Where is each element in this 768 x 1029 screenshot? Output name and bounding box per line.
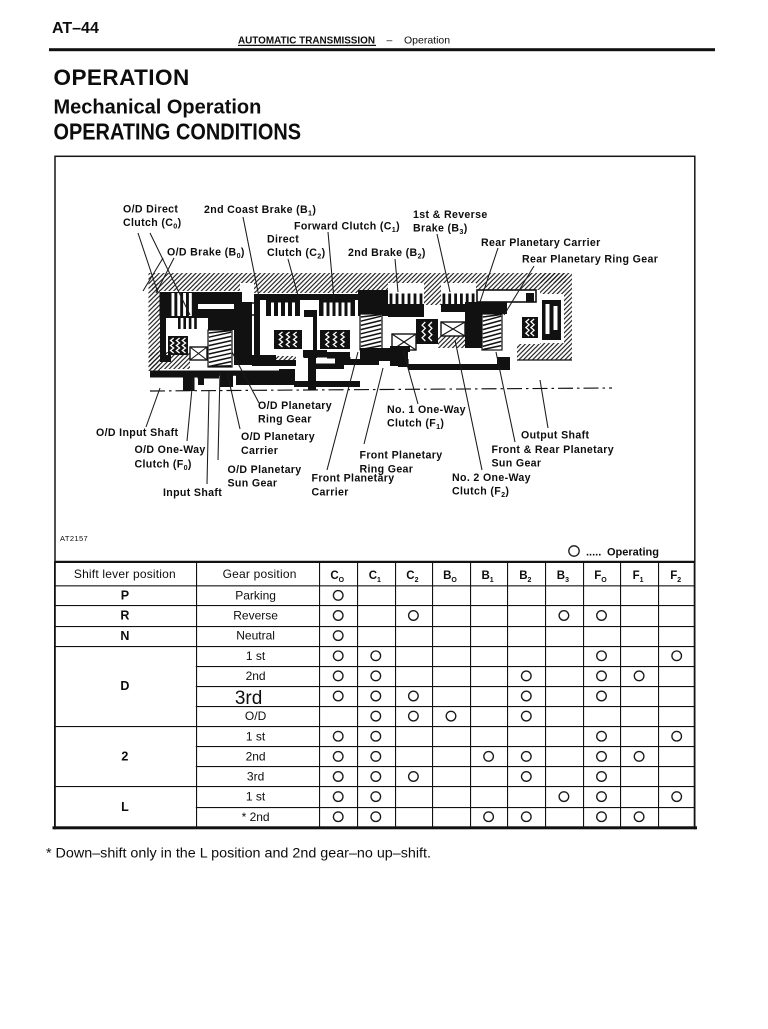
- svg-text:Carrier: Carrier: [312, 487, 349, 499]
- svg-text:R: R: [120, 609, 129, 623]
- svg-text:2nd Coast Brake (B1): 2nd Coast Brake (B1): [204, 204, 316, 218]
- svg-text:N: N: [120, 629, 129, 643]
- svg-text:Mechanical Operation: Mechanical Operation: [54, 96, 262, 118]
- svg-text:1 st: 1 st: [246, 790, 266, 804]
- svg-text:Operating: Operating: [607, 547, 659, 559]
- svg-text:Reverse: Reverse: [233, 609, 278, 623]
- svg-text:Neutral: Neutral: [236, 629, 275, 643]
- svg-text:Carrier: Carrier: [241, 445, 278, 457]
- svg-text:O/D: O/D: [245, 709, 267, 723]
- svg-text:2nd Brake (B2): 2nd Brake (B2): [348, 247, 426, 261]
- svg-text:Ring Gear: Ring Gear: [360, 464, 414, 476]
- svg-text:O/D Direct: O/D Direct: [123, 204, 178, 216]
- svg-text:2nd: 2nd: [246, 750, 266, 764]
- svg-text:OPERATING CONDITIONS: OPERATING CONDITIONS: [54, 119, 302, 145]
- svg-text:AT2157: AT2157: [60, 534, 88, 543]
- svg-text:O/D Planetary: O/D Planetary: [241, 431, 315, 443]
- svg-text:2: 2: [121, 750, 128, 764]
- svg-text:O/D Input Shaft: O/D Input Shaft: [96, 427, 178, 439]
- svg-text:Clutch (F0): Clutch (F0): [135, 459, 192, 473]
- svg-text:OPERATION: OPERATION: [54, 65, 190, 90]
- svg-text:Front Planetary: Front Planetary: [360, 450, 443, 462]
- svg-text:1st & Reverse: 1st & Reverse: [413, 209, 488, 221]
- svg-text:AUTOMATIC TRANSMISSION: AUTOMATIC TRANSMISSION: [238, 35, 375, 47]
- svg-text:Sun Gear: Sun Gear: [228, 478, 278, 490]
- svg-text:* Down–shift only in the L pos: * Down–shift only in the L position and …: [46, 846, 431, 861]
- svg-text:Clutch (C0): Clutch (C0): [123, 217, 181, 231]
- svg-text:P: P: [121, 589, 129, 603]
- svg-text:Rear Planetary Ring Gear: Rear Planetary Ring Gear: [522, 254, 658, 266]
- svg-text:O/D Planetary: O/D Planetary: [228, 464, 302, 476]
- svg-text:No. 1 One-Way: No. 1 One-Way: [387, 404, 466, 416]
- svg-text:Forward Clutch (C1): Forward Clutch (C1): [294, 221, 400, 235]
- svg-text:.....: .....: [586, 547, 601, 559]
- svg-text:Sun Gear: Sun Gear: [492, 458, 542, 470]
- svg-text:3rd: 3rd: [235, 688, 262, 709]
- svg-text:O/D One-Way: O/D One-Way: [135, 444, 206, 456]
- svg-text:Clutch (F1): Clutch (F1): [387, 418, 444, 432]
- svg-text:AT–44: AT–44: [52, 20, 99, 37]
- svg-text:Gear position: Gear position: [223, 567, 297, 581]
- svg-text:Rear Planetary Carrier: Rear Planetary Carrier: [481, 237, 601, 249]
- svg-text:1 st: 1 st: [246, 649, 266, 663]
- svg-text:Output Shaft: Output Shaft: [521, 430, 589, 442]
- svg-text:3rd: 3rd: [247, 770, 264, 784]
- svg-text:D: D: [120, 679, 129, 693]
- svg-text:O/D Planetary: O/D Planetary: [258, 400, 332, 412]
- svg-text:–: –: [387, 35, 393, 47]
- svg-text:Clutch (F2): Clutch (F2): [452, 486, 509, 500]
- svg-text:Clutch (C2): Clutch (C2): [267, 247, 325, 261]
- svg-text:O/D Brake (B0): O/D Brake (B0): [167, 247, 245, 261]
- svg-text:Operation: Operation: [404, 35, 450, 47]
- svg-text:Parking: Parking: [235, 589, 276, 603]
- svg-text:Shift lever position: Shift lever position: [74, 567, 176, 581]
- svg-text:* 2nd: * 2nd: [242, 810, 270, 824]
- svg-text:Input Shaft: Input Shaft: [163, 487, 222, 499]
- svg-text:Front & Rear Planetary: Front & Rear Planetary: [492, 444, 615, 456]
- svg-text:Ring Gear: Ring Gear: [258, 414, 312, 426]
- svg-text:1 st: 1 st: [246, 729, 266, 743]
- svg-text:No. 2 One-Way: No. 2 One-Way: [452, 472, 531, 484]
- svg-text:2nd: 2nd: [246, 669, 266, 683]
- svg-text:L: L: [121, 800, 129, 814]
- svg-text:Direct: Direct: [267, 234, 299, 246]
